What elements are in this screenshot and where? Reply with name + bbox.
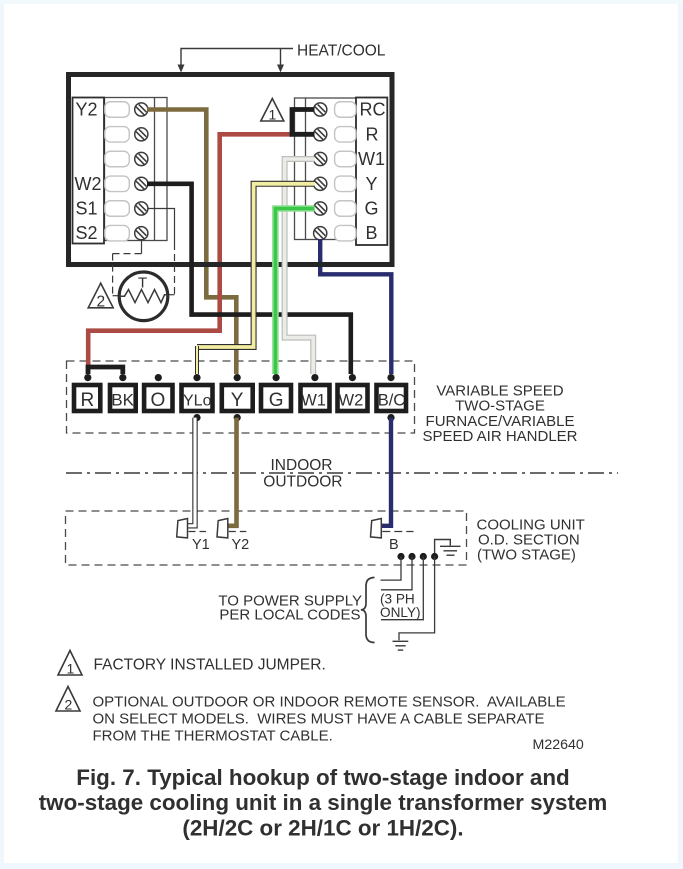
svg-text:W2: W2 (75, 174, 102, 194)
svg-text:INDOOR: INDOOR (271, 457, 333, 474)
svg-text:SPEED AIR HANDLER: SPEED AIR HANDLER (422, 428, 577, 445)
svg-text:B/C: B/C (378, 391, 406, 409)
svg-text:2: 2 (65, 697, 73, 713)
svg-text:Y1: Y1 (192, 537, 210, 553)
svg-text:M22640: M22640 (533, 737, 584, 753)
svg-text:G: G (365, 199, 379, 219)
svg-text:B: B (389, 537, 399, 553)
svg-text:Y: Y (366, 174, 378, 194)
svg-text:1: 1 (67, 661, 75, 677)
svg-text:W1: W1 (358, 149, 385, 169)
svg-text:Y2: Y2 (232, 537, 250, 553)
svg-text:(2H/2C or 2H/1C or 1H/2C).: (2H/2C or 2H/1C or 1H/2C). (182, 815, 463, 840)
svg-text:OUTDOOR: OUTDOOR (263, 474, 342, 491)
svg-text:G: G (269, 390, 284, 411)
svg-text:Y2: Y2 (76, 100, 98, 120)
svg-text:FACTORY INSTALLED JUMPER.: FACTORY INSTALLED JUMPER. (94, 657, 326, 674)
svg-text:B: B (366, 223, 378, 243)
svg-text:two-stage cooling unit in a si: two-stage cooling unit in a single trans… (39, 790, 608, 815)
svg-text:ON SELECT MODELS. WIRES MUST: ON SELECT MODELS. WIRES MUST HAVE A CABL… (93, 710, 545, 727)
svg-text:OPTIONAL OUTDOOR OR INDOOR REM: OPTIONAL OUTDOOR OR INDOOR REMOTE SENSOR… (93, 693, 566, 710)
svg-text:T: T (138, 275, 147, 292)
svg-text:W2: W2 (339, 391, 364, 409)
svg-text:S1: S1 (76, 199, 98, 219)
svg-text:HEAT/COOL: HEAT/COOL (297, 43, 386, 60)
svg-text:BK: BK (111, 391, 134, 410)
svg-text:(TWO STAGE): (TWO STAGE) (477, 546, 576, 563)
svg-text:YLo: YLo (183, 392, 212, 409)
svg-text:Y: Y (231, 390, 244, 411)
svg-text:O: O (151, 390, 166, 411)
svg-text:S2: S2 (76, 223, 98, 243)
svg-text:R: R (81, 390, 95, 411)
svg-text:W1: W1 (301, 391, 326, 409)
svg-text:Fig. 7. Typical hookup of two-: Fig. 7. Typical hookup of two-stage indo… (76, 765, 569, 790)
svg-text:1: 1 (269, 107, 277, 123)
svg-text:ONLY): ONLY) (380, 605, 421, 620)
svg-text:PER LOCAL CODES: PER LOCAL CODES (219, 607, 360, 624)
svg-text:2: 2 (97, 294, 106, 311)
svg-text:FROM THE THERMOSTAT CABLE.: FROM THE THERMOSTAT CABLE. (93, 727, 333, 744)
svg-text:RC: RC (360, 100, 386, 120)
svg-text:R: R (366, 124, 379, 144)
